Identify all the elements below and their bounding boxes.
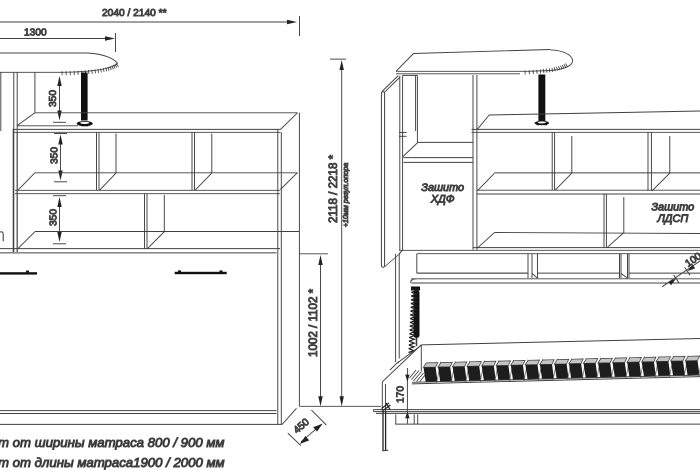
svg-text:Зашито: Зашито xyxy=(651,201,694,213)
svg-text:ЛДСП: ЛДСП xyxy=(656,213,688,225)
svg-text:+10мм резул.опора: +10мм резул.опора xyxy=(341,163,350,228)
svg-text:350: 350 xyxy=(48,90,59,107)
svg-text:350: 350 xyxy=(49,209,60,226)
svg-text:2118 / 2218 *: 2118 / 2218 * xyxy=(327,154,340,223)
svg-text:2040 / 2140 **: 2040 / 2140 ** xyxy=(102,8,167,19)
svg-text:1300: 1300 xyxy=(24,28,47,39)
svg-text:1002 / 1102 *: 1002 / 1102 * xyxy=(307,288,320,357)
svg-text:т от длины матраса1900 / 2000: т от длины матраса1900 / 2000 мм xyxy=(0,455,225,470)
svg-text:т от ширины матраса 800 / 900: т от ширины матраса 800 / 900 мм xyxy=(0,435,224,450)
svg-text:Зашито: Зашито xyxy=(421,182,464,194)
svg-text:350: 350 xyxy=(50,147,61,164)
svg-text:170: 170 xyxy=(396,386,407,403)
svg-text:ХДФ: ХДФ xyxy=(430,193,455,205)
